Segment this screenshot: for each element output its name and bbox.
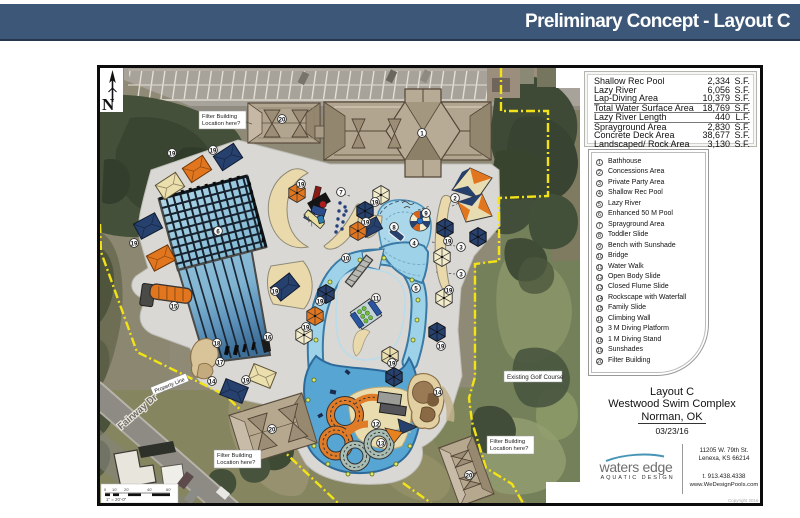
svg-text:14: 14 — [209, 379, 216, 385]
svg-text:20': 20' — [124, 487, 129, 492]
svg-text:20: 20 — [269, 427, 276, 433]
svg-text:19: 19 — [363, 220, 370, 226]
svg-text:19: 19 — [298, 182, 305, 188]
svg-text:19: 19 — [210, 148, 217, 154]
svg-text:10: 10 — [343, 256, 350, 262]
svg-text:Location here?: Location here? — [490, 446, 529, 452]
svg-text:19: 19 — [438, 344, 445, 350]
svg-text:Filter Building: Filter Building — [490, 439, 525, 445]
svg-text:20: 20 — [466, 473, 473, 479]
svg-text:60': 60' — [166, 487, 171, 492]
svg-text:Location here?: Location here? — [202, 121, 241, 127]
svg-text:Location here?: Location here? — [217, 460, 256, 466]
svg-text:18: 18 — [214, 341, 221, 347]
svg-text:19: 19 — [446, 288, 453, 294]
svg-text:15: 15 — [171, 304, 178, 310]
svg-text:19: 19 — [389, 361, 396, 367]
svg-text:19: 19 — [169, 151, 176, 157]
svg-text:1" = 20'-0": 1" = 20'-0" — [106, 497, 127, 502]
svg-text:N: N — [102, 95, 115, 114]
svg-text:Filter Building: Filter Building — [217, 453, 252, 459]
svg-text:20: 20 — [279, 117, 286, 123]
svg-text:Existing Golf Course: Existing Golf Course — [507, 374, 564, 381]
svg-text:40': 40' — [147, 487, 152, 492]
svg-text:Filter Building: Filter Building — [202, 114, 237, 120]
svg-text:19: 19 — [243, 378, 250, 384]
svg-text:13: 13 — [378, 441, 385, 447]
svg-text:14: 14 — [435, 390, 442, 396]
svg-text:19: 19 — [317, 299, 324, 305]
svg-text:17: 17 — [217, 360, 224, 366]
svg-text:12: 12 — [373, 422, 380, 428]
svg-text:10': 10' — [112, 487, 117, 492]
svg-text:19: 19 — [272, 289, 279, 295]
svg-text:11: 11 — [373, 296, 380, 302]
svg-text:19: 19 — [445, 239, 452, 245]
svg-text:19: 19 — [303, 325, 310, 331]
svg-text:16: 16 — [265, 335, 272, 341]
svg-text:19: 19 — [372, 200, 379, 206]
svg-text:19: 19 — [131, 241, 138, 247]
